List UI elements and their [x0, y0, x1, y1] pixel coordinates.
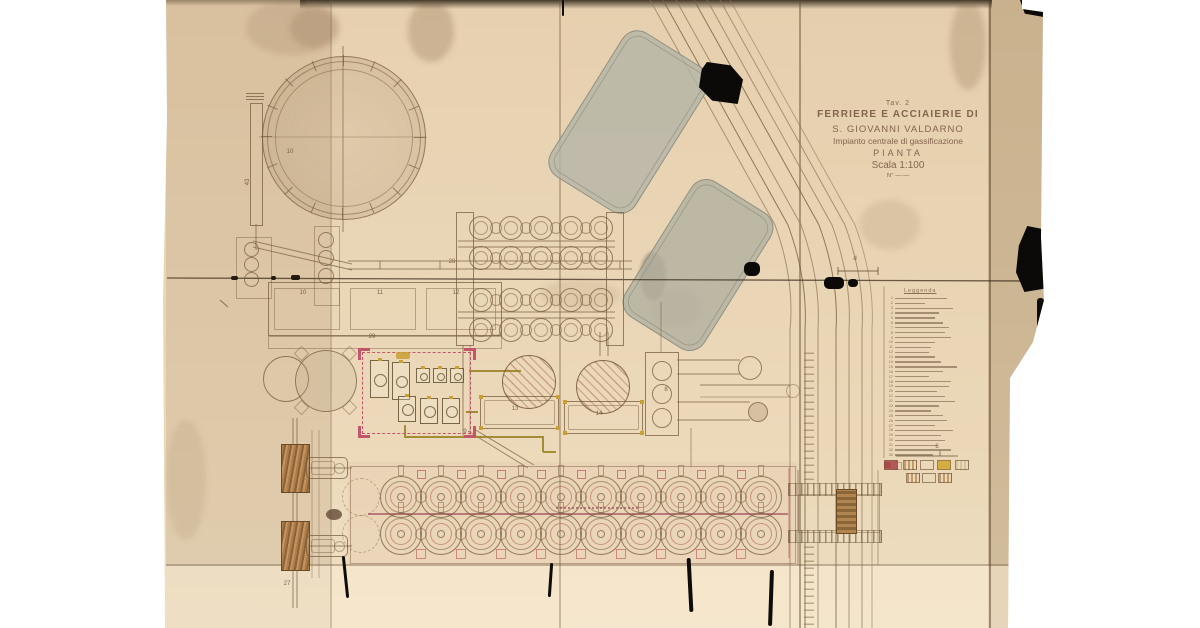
- magenta-line-label: [556, 507, 640, 509]
- gasifier-valve: [520, 324, 532, 336]
- oven-stub: [598, 465, 604, 476]
- legend-text-line: [895, 342, 935, 343]
- legend-number: 29: [886, 433, 893, 437]
- oven-stub: [718, 465, 724, 476]
- legend-text-line: [895, 308, 953, 309]
- gasifier-cell-inner: [504, 221, 518, 235]
- oven-center: [637, 493, 645, 501]
- tank-corner-yellow: [556, 395, 560, 399]
- oven-coupling: [415, 491, 427, 503]
- pink-flue-square: [657, 470, 666, 479]
- pump-body: [311, 539, 335, 553]
- machine-wheel: [374, 374, 387, 387]
- legend-text-line: [895, 376, 929, 377]
- oven-coupling: [535, 491, 547, 503]
- legend-number: 33: [886, 453, 893, 457]
- material-swatch: [884, 460, 898, 470]
- pink-flue-square: [457, 470, 466, 479]
- yellow-fitting: [405, 394, 409, 397]
- legend-text-line: [895, 298, 947, 299]
- yellow-fitting: [449, 396, 453, 399]
- gasifier-cell-inner: [534, 251, 548, 265]
- pink-flue-square: [537, 470, 546, 479]
- oven-coupling: [535, 528, 547, 540]
- legend-text-line: [895, 361, 941, 362]
- legend-text-line: [895, 327, 949, 328]
- oven-stub: [758, 502, 764, 513]
- annotation-number: 9: [463, 429, 466, 435]
- material-swatch: [922, 473, 936, 483]
- legend-number: 16: [886, 370, 893, 374]
- oven-coupling: [735, 528, 747, 540]
- tank-corner-yellow: [563, 431, 567, 435]
- material-swatch: [938, 473, 952, 483]
- pipe-junction: [786, 384, 800, 398]
- legend-text-line: [895, 396, 945, 397]
- arm-end-circle: [738, 356, 762, 380]
- gasifier-cell-inner: [564, 221, 578, 235]
- oven-center: [517, 493, 525, 501]
- legend-text-line: [895, 415, 943, 416]
- legend-text-line: [895, 317, 935, 318]
- legend-text-line: [895, 435, 941, 436]
- legend-number: 3: [886, 306, 893, 310]
- legend-text-line: [895, 430, 953, 431]
- pump-body: [311, 461, 335, 475]
- gasifier-valve: [550, 294, 562, 306]
- legend-number: 12: [886, 350, 893, 354]
- oven-coupling: [455, 491, 467, 503]
- side-duct-cap-marks: [246, 92, 264, 100]
- gasifier-cell-inner: [534, 293, 548, 307]
- legend-number: 21: [886, 394, 893, 398]
- annotation-number: 14: [596, 411, 603, 417]
- legend-number: 9: [886, 336, 893, 340]
- gasifier-valve: [550, 252, 562, 264]
- oven-stub: [478, 502, 484, 513]
- legend-number: 18: [886, 380, 893, 384]
- gasifier-cell-inner: [594, 221, 608, 235]
- pink-flue-square: [736, 549, 746, 559]
- legend-number: 4: [886, 311, 893, 315]
- legend-number: 6: [886, 321, 893, 325]
- gasifier-cell-inner: [534, 323, 548, 337]
- legend-number: 22: [886, 399, 893, 403]
- oven-center: [437, 493, 445, 501]
- gasifier-cell-inner: [504, 251, 518, 265]
- legend-number: 1: [886, 296, 893, 300]
- oven-coupling: [415, 528, 427, 540]
- machine-wheel: [454, 373, 462, 381]
- gasifier-cell-inner: [474, 251, 488, 265]
- pink-flue-square: [696, 549, 706, 559]
- legend-number: 28: [886, 428, 893, 432]
- legend-text-line: [895, 381, 951, 382]
- oven-coupling: [575, 491, 587, 503]
- legend-number: 26: [886, 419, 893, 423]
- annotation-number: 8: [664, 387, 667, 393]
- title-line-subject: Impianto centrale di gassificazione: [792, 136, 1004, 146]
- pump-machine: [306, 457, 348, 479]
- datum-ink-dash: [291, 275, 300, 280]
- oven-center: [717, 493, 725, 501]
- legend-number: 14: [886, 360, 893, 364]
- exhauster-wheel: [652, 408, 672, 428]
- paper-crack-top: [562, 0, 564, 16]
- loading-ramp-wood: [836, 489, 857, 534]
- oven-coupling: [655, 528, 667, 540]
- annotation-number: 29: [369, 334, 376, 340]
- legend-number: 19: [886, 384, 893, 388]
- legend-text-line: [895, 405, 939, 406]
- machine-wheel: [424, 406, 436, 418]
- gasifier-cell-inner: [534, 221, 548, 235]
- tank-corner-yellow: [556, 426, 560, 430]
- machine-unit: [420, 398, 438, 424]
- oven-center: [597, 530, 605, 538]
- yellow-pipe-node: [396, 352, 410, 359]
- pink-flue-square: [416, 549, 426, 559]
- machine-wheel: [420, 373, 428, 381]
- legend-text-line: [895, 332, 945, 333]
- annotation-number: 11: [377, 290, 383, 296]
- legend-text-line: [895, 391, 937, 392]
- oven-coupling: [695, 528, 707, 540]
- gasifier-cell-inner: [564, 293, 578, 307]
- yellow-fitting: [438, 366, 442, 369]
- legend-list: Leggenda 1234567891011121314151617181920…: [886, 288, 990, 457]
- tower-a-wheel: [244, 272, 259, 287]
- gasifier-cell-inner: [594, 293, 608, 307]
- legend-number: 27: [886, 424, 893, 428]
- scanned-plan-document: Tav. 2 FERRIERE E ACCIAIERIE DI S. GIOVA…: [0, 0, 1200, 628]
- gasifier-valve: [520, 252, 532, 264]
- annotation-number: 10: [300, 290, 307, 296]
- legend-number: 25: [886, 414, 893, 418]
- legend-items: 1234567891011121314151617181920212223242…: [886, 296, 990, 457]
- tank-corner-yellow: [563, 400, 567, 404]
- legend-number: 17: [886, 375, 893, 379]
- legend-number: 31: [886, 443, 893, 447]
- machine-unit: [442, 398, 460, 424]
- gasifier-cell-inner: [504, 293, 518, 307]
- oven-coupling: [735, 491, 747, 503]
- gas-holder-tick: [414, 137, 425, 138]
- legend-number: 30: [886, 438, 893, 442]
- gas-holder-tick: [342, 208, 343, 219]
- legend-text-line: [895, 425, 935, 426]
- legend-number: 15: [886, 365, 893, 369]
- yellow-fitting: [399, 360, 403, 363]
- title-block: Tav. 2 FERRIERE E ACCIAIERIE DI S. GIOVA…: [792, 100, 1004, 179]
- gasifier-valve: [550, 324, 562, 336]
- legend-text-line: [895, 371, 943, 372]
- pink-flue-square: [617, 470, 626, 479]
- oven-center: [637, 530, 645, 538]
- oven-coupling: [615, 528, 627, 540]
- gasifier-cell-inner: [564, 323, 578, 337]
- oven-center: [757, 530, 765, 538]
- legend-text-line: [895, 386, 949, 387]
- gasifier-cell-inner: [474, 323, 488, 337]
- machine-unit: [450, 368, 464, 383]
- oven-coupling: [695, 491, 707, 503]
- annotation-number: 27: [284, 581, 291, 587]
- annotation-number: 12: [453, 290, 460, 296]
- title-line-company: FERRIERE E ACCIAIERIE DI: [792, 109, 1004, 120]
- legend-row: 33: [886, 453, 990, 458]
- datum-ink-dash: [271, 276, 276, 280]
- bunker-cell: [274, 288, 340, 330]
- gasifier-valve: [490, 294, 502, 306]
- annotation-number: 6: [935, 444, 938, 450]
- pink-flue-square: [496, 549, 506, 559]
- gasifier-cell-inner: [474, 293, 488, 307]
- oven-coupling: [455, 528, 467, 540]
- paper-tear-small: [848, 279, 858, 287]
- title-note: N° —·—: [792, 173, 1004, 179]
- gasifier-valve: [490, 222, 502, 234]
- tower-b-wheel: [318, 232, 334, 248]
- tank-2: [564, 401, 643, 434]
- gasifier-valve: [520, 222, 532, 234]
- battery-left-valve: [326, 509, 342, 520]
- pink-flue-square: [536, 549, 546, 559]
- legend-text-line: [895, 440, 945, 441]
- legend-text-line: [895, 449, 951, 450]
- gasifier-cell-inner: [594, 251, 608, 265]
- title-line-pianta: PIANTA: [792, 148, 1004, 158]
- gasifier-cell-inner: [564, 251, 578, 265]
- oven-center: [517, 530, 525, 538]
- material-swatch: [906, 473, 920, 483]
- material-swatch: [920, 460, 934, 470]
- datum-ink-dash: [231, 276, 238, 280]
- oven-center: [477, 493, 485, 501]
- legend-text-line: [895, 347, 931, 348]
- exhauster-wheel: [652, 384, 672, 404]
- pump-wheel: [334, 541, 345, 552]
- legend-number: 32: [886, 448, 893, 452]
- oven-stub: [438, 502, 444, 513]
- legend-text-line: [895, 337, 951, 338]
- gasifier-valve: [580, 252, 592, 264]
- pump-wheel: [334, 463, 345, 474]
- yellow-fitting: [421, 366, 425, 369]
- sheet-number: Tav. 2: [792, 100, 1004, 107]
- legend-text-line: [895, 356, 935, 357]
- pink-flue-square: [456, 549, 466, 559]
- tank-corner-yellow: [479, 395, 483, 399]
- legend-text-line: [895, 352, 929, 353]
- material-swatch: [937, 460, 951, 470]
- legend-number: 23: [886, 404, 893, 408]
- paper-tear-small: [824, 277, 844, 289]
- gasifier-valve: [580, 294, 592, 306]
- legend-text-line: [895, 401, 955, 402]
- pink-flue-square: [656, 549, 666, 559]
- tank-inner: [568, 405, 639, 430]
- legend-text-line: [895, 312, 939, 313]
- pink-flue-square: [697, 470, 706, 479]
- legend-text-line: [895, 410, 931, 411]
- paper-tear-small: [744, 262, 760, 276]
- legend-number: 7: [886, 326, 893, 330]
- tank-corner-yellow: [640, 400, 644, 404]
- legend-number: 11: [886, 345, 893, 349]
- title-line-scale: Scala 1:100: [792, 160, 1004, 171]
- oven-coupling: [655, 491, 667, 503]
- tank-inner: [484, 400, 555, 425]
- oven-stub: [398, 502, 404, 513]
- machine-unit: [433, 368, 447, 383]
- oven-stub: [478, 465, 484, 476]
- oven-stub: [518, 465, 524, 476]
- oven-stub: [718, 502, 724, 513]
- legend-number: 13: [886, 355, 893, 359]
- legend-text-line: [895, 454, 933, 455]
- yellow-fitting: [455, 366, 459, 369]
- machine-unit: [370, 360, 389, 398]
- gasifier-cell-inner: [594, 323, 608, 337]
- annotation-number: 28: [449, 259, 456, 265]
- legend-text-line: [895, 366, 957, 367]
- oven-center: [717, 530, 725, 538]
- oven-center: [397, 530, 405, 538]
- pink-flue-square: [497, 470, 506, 479]
- machine-unit: [416, 368, 430, 383]
- oven-center: [397, 493, 405, 501]
- legend-number: 10: [886, 340, 893, 344]
- gasifier-valve: [490, 252, 502, 264]
- machine-wheel: [437, 373, 445, 381]
- red-corner-mark: [464, 348, 476, 360]
- pink-flue-square: [616, 549, 626, 559]
- gasifier-valve: [550, 222, 562, 234]
- arm-end-circle: [748, 402, 768, 422]
- annotation-number: d: [853, 256, 856, 262]
- red-corner-mark: [358, 426, 370, 438]
- legend-text-line: [895, 322, 943, 323]
- tower-b-wheel: [318, 250, 334, 266]
- oven-center: [757, 493, 765, 501]
- oven-center: [557, 530, 565, 538]
- machine-wheel: [446, 406, 458, 418]
- oven-stub: [678, 502, 684, 513]
- gas-holder-side-duct: [250, 103, 263, 226]
- aged-paper-sheet: Tav. 2 FERRIERE E ACCIAIERIE DI S. GIOVA…: [0, 0, 1200, 628]
- gas-holder-tick: [343, 55, 344, 66]
- oven-center: [477, 530, 485, 538]
- legend-text-line: [895, 303, 925, 304]
- legend-number: 8: [886, 331, 893, 335]
- annotation-number: 13: [512, 406, 519, 412]
- oven-coupling: [615, 491, 627, 503]
- legend-text-line: [895, 445, 937, 446]
- tank-corner-yellow: [479, 426, 483, 430]
- exhauster-wheel: [652, 361, 672, 381]
- oven-stub: [678, 465, 684, 476]
- oven-stub: [638, 465, 644, 476]
- oven-center: [677, 493, 685, 501]
- legend-number: 20: [886, 389, 893, 393]
- legend-header: Leggenda: [904, 288, 990, 294]
- legend-number: 5: [886, 316, 893, 320]
- gasifier-valve: [490, 324, 502, 336]
- gasifier-valve: [580, 324, 592, 336]
- oven-stub: [398, 465, 404, 476]
- oven-coupling: [575, 528, 587, 540]
- oven-center: [597, 493, 605, 501]
- oven-center: [677, 530, 685, 538]
- gasifier-valve: [520, 294, 532, 306]
- gasifier-cell-inner: [504, 323, 518, 337]
- tower-a-wheel: [244, 257, 259, 272]
- material-swatch: [903, 460, 917, 470]
- oven-stub: [438, 465, 444, 476]
- machine-wheel: [396, 376, 408, 388]
- oven-coupling: [495, 528, 507, 540]
- oven-stub: [558, 465, 564, 476]
- pink-flue-square: [576, 549, 586, 559]
- title-line-city: S. GIOVANNI VALDARNO: [792, 124, 1004, 135]
- red-corner-mark: [358, 348, 370, 360]
- tank-corner-yellow: [640, 431, 644, 435]
- oven-coupling: [495, 491, 507, 503]
- annotation-number: 43: [245, 179, 251, 186]
- oven-center: [557, 493, 565, 501]
- oven-stub: [758, 465, 764, 476]
- legend-text-line: [895, 420, 947, 421]
- tower-a-wheel: [244, 242, 259, 257]
- pink-flue-square: [577, 470, 586, 479]
- pump-machine: [306, 535, 348, 557]
- yellow-fitting: [427, 396, 431, 399]
- paper-crack-edge: [1037, 298, 1044, 344]
- legend-number: 2: [886, 301, 893, 305]
- pink-flue-square: [417, 470, 426, 479]
- yellow-fitting: [378, 358, 382, 361]
- tank-1: [480, 396, 559, 429]
- oven-stub: [518, 502, 524, 513]
- gasifier-cell-inner: [474, 221, 488, 235]
- gasifier-valve: [580, 222, 592, 234]
- oven-circle-ghost: [342, 478, 380, 516]
- legend-number: 24: [886, 409, 893, 413]
- machine-unit: [398, 396, 416, 422]
- machine-wheel: [402, 404, 414, 416]
- pink-flue-square: [737, 470, 746, 479]
- oven-center: [437, 530, 445, 538]
- material-swatch: [955, 460, 969, 470]
- annotation-number: 10: [287, 149, 294, 155]
